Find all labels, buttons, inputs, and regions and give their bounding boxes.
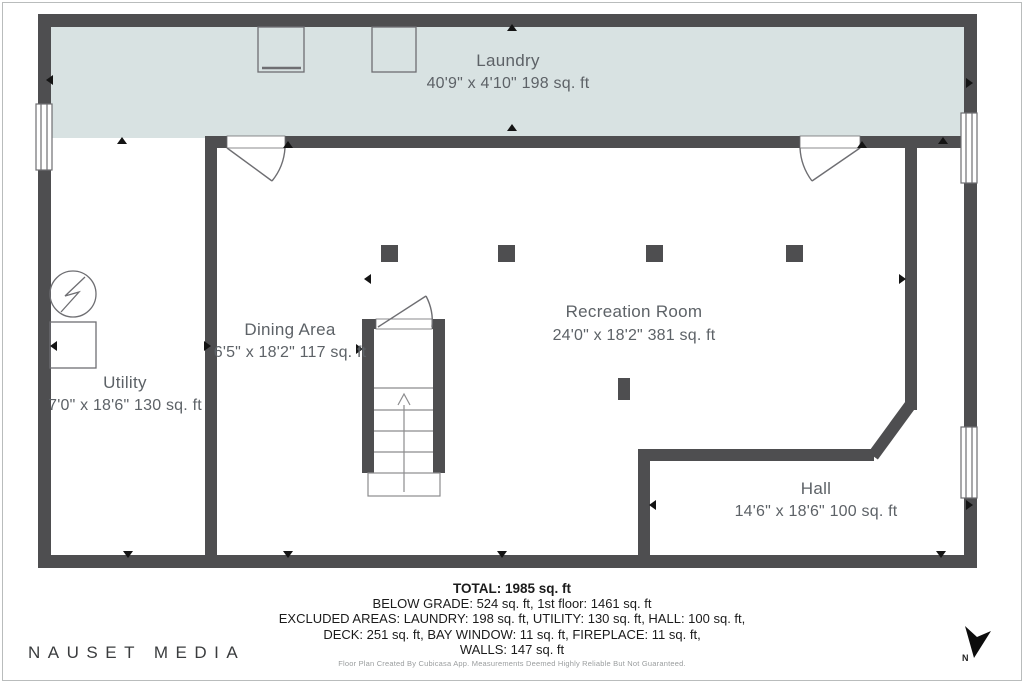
summary-line: EXCLUDED AREAS: LAUNDRY: 198 sq. ft, UTI…	[279, 611, 746, 626]
summary-line: DECK: 251 sq. ft, BAY WINDOW: 11 sq. ft,…	[279, 627, 746, 642]
stairs-up-arrow-icon	[398, 394, 410, 405]
room-name: Dining Area	[214, 321, 367, 338]
marker-triangle	[117, 137, 127, 144]
utility-fixtures	[50, 271, 96, 368]
room-dims: 40'9" x 4'10" 198 sq. ft	[427, 76, 590, 92]
area-summary: TOTAL: 1985 sq. ft BELOW GRADE: 524 sq. …	[279, 581, 746, 657]
doors	[227, 136, 860, 329]
branding-logo: NAUSET MEDIA	[28, 643, 245, 663]
summary-total: TOTAL: 1985 sq. ft	[279, 581, 746, 596]
summary-line: WALLS: 147 sq. ft	[279, 642, 746, 657]
room-label-recreation: Recreation Room 24'0" x 18'2" 381 sq. ft	[553, 303, 716, 344]
door-stairs	[376, 296, 432, 329]
wall-diagonal	[873, 404, 911, 456]
column	[646, 245, 663, 262]
room-name: Utility	[48, 374, 202, 391]
columns	[381, 245, 803, 262]
north-label: N	[962, 653, 969, 663]
marker-triangle	[649, 500, 656, 510]
room-name: Laundry	[427, 52, 590, 69]
lightning-icon	[61, 277, 85, 312]
room-name: Hall	[735, 480, 898, 497]
column	[786, 245, 803, 262]
wall-hall-left	[638, 449, 650, 568]
north-arrow-icon	[965, 626, 991, 658]
column	[498, 245, 515, 262]
room-label-dining: Dining Area 6'5" x 18'2" 117 sq. ft	[214, 321, 367, 361]
floorplan-canvas: Laundry 40'9" x 4'10" 198 sq. ft Dining …	[0, 0, 1024, 683]
door-laundry-dining	[227, 136, 285, 181]
wall-top	[38, 14, 977, 27]
wall-hall-top	[638, 449, 874, 461]
stairs	[368, 388, 440, 496]
room-dims: 24'0" x 18'2" 381 sq. ft	[553, 328, 716, 344]
marker-triangle	[899, 274, 906, 284]
column	[381, 245, 398, 262]
wall-stair-right	[433, 319, 445, 473]
disclaimer-text: Floor Plan Created By Cubicasa App. Meas…	[338, 659, 686, 668]
marker-triangle	[364, 274, 371, 284]
room-label-hall: Hall 14'6" x 18'6" 100 sq. ft	[735, 480, 898, 520]
window-left	[36, 104, 52, 170]
room-dims: 14'6" x 18'6" 100 sq. ft	[735, 504, 898, 520]
window-right-upper	[961, 113, 977, 183]
wall-stub	[618, 378, 630, 400]
room-label-laundry: Laundry 40'9" x 4'10" 198 sq. ft	[427, 52, 590, 92]
window-right-lower	[961, 427, 977, 498]
windows	[36, 104, 977, 498]
wall-right-divider	[905, 136, 917, 410]
summary-line: BELOW GRADE: 524 sq. ft, 1st floor: 1461…	[279, 596, 746, 611]
room-name: Recreation Room	[553, 303, 716, 320]
door-laundry-recreation	[800, 136, 860, 181]
room-dims: 6'5" x 18'2" 117 sq. ft	[214, 345, 367, 361]
room-label-utility: Utility 7'0" x 18'6" 130 sq. ft	[48, 374, 202, 414]
room-dims: 7'0" x 18'6" 130 sq. ft	[48, 398, 202, 414]
marker-triangle	[50, 341, 57, 351]
wall-bottom	[38, 555, 977, 568]
wall-left	[38, 14, 51, 568]
